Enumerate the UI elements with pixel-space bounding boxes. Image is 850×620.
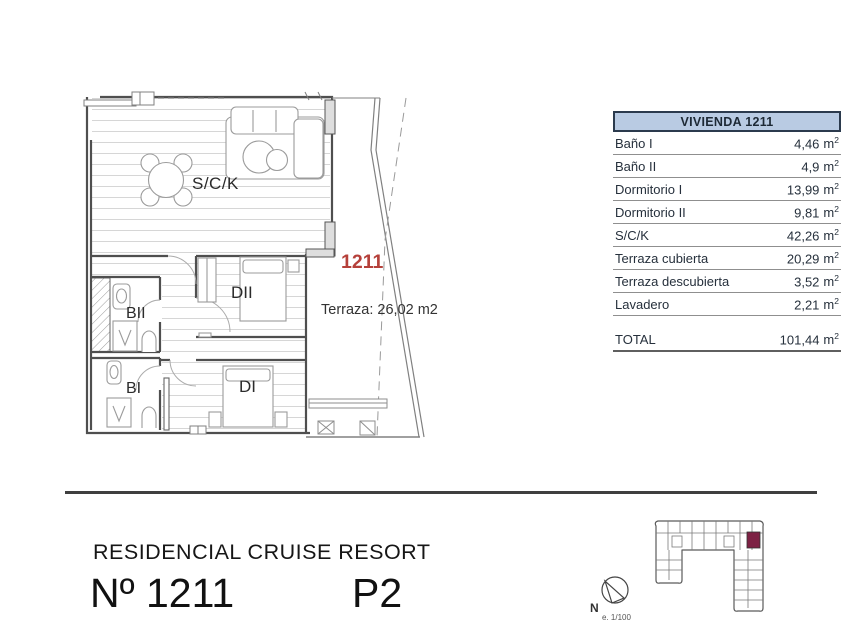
scale-label: e. 1/100 <box>602 613 631 620</box>
row-value: 42,26m2 <box>787 222 839 246</box>
shower-icon <box>107 398 131 427</box>
table-row: Baño II 4,9m2 <box>613 155 841 178</box>
row-label: S/C/K <box>615 226 649 246</box>
row-label: Baño II <box>615 157 656 177</box>
north-label: N <box>590 601 599 615</box>
table-row: Dormitorio I 13,99m2 <box>613 178 841 201</box>
unit-number-annotation: 1211 <box>341 251 383 273</box>
row-value: 20,29m2 <box>787 245 839 269</box>
row-value: 2,21m2 <box>794 291 839 315</box>
plan-sheet: S/C/K DII BII BI DI 1211 Terraza: 26,02 … <box>0 0 850 620</box>
row-label: Baño I <box>615 134 653 154</box>
laundry-hatch <box>91 278 110 352</box>
room-label-sck: S/C/K <box>192 174 239 193</box>
row-label: Terraza cubierta <box>615 249 708 269</box>
toilet-icon <box>142 407 156 428</box>
table-total-row: TOTAL 101,44m2 <box>613 328 841 352</box>
project-name: RESIDENCIAL CRUISE RESORT <box>93 540 430 565</box>
row-value: 3,52m2 <box>794 268 839 292</box>
table-row: Terraza descubierta 3,52m2 <box>613 270 841 293</box>
terrace-furniture <box>309 399 387 435</box>
footer-unit-number: Nº 1211 <box>90 570 234 617</box>
dining-table-icon <box>149 163 184 198</box>
total-value: 101,44m2 <box>780 326 839 350</box>
footer-floor-label: P2 <box>352 570 402 617</box>
row-value: 13,99m2 <box>787 176 839 200</box>
table-row: Lavadero 2,21m2 <box>613 293 841 316</box>
table-row: Dormitorio II 9,81m2 <box>613 201 841 224</box>
terrace-area-annotation: Terraza: 26,02 m2 <box>321 302 438 318</box>
building-key-plan <box>648 516 770 616</box>
table-row: Baño I 4,46m2 <box>613 132 841 155</box>
toilet-icon <box>142 331 156 352</box>
row-value: 4,9m2 <box>801 153 839 177</box>
room-label-di: DI <box>239 377 256 396</box>
row-label: Dormitorio II <box>615 203 686 223</box>
compass: N e. 1/100 <box>584 570 648 620</box>
row-label: Terraza descubierta <box>615 272 729 292</box>
highlighted-unit <box>747 532 760 548</box>
area-table: VIVIENDA 1211 Baño I 4,46m2 Baño II 4,9m… <box>613 111 841 352</box>
shower-icon <box>113 321 137 351</box>
row-value: 9,81m2 <box>794 199 839 223</box>
row-value: 4,46m2 <box>794 130 839 154</box>
room-label-dii: DII <box>231 283 253 302</box>
footer-divider <box>65 491 817 494</box>
table-row: S/C/K 42,26m2 <box>613 224 841 247</box>
room-label-bi: BI <box>126 380 141 397</box>
total-label: TOTAL <box>615 330 656 350</box>
north-arrow-icon <box>605 581 624 603</box>
row-label: Dormitorio I <box>615 180 682 200</box>
row-label: Lavadero <box>615 295 669 315</box>
table-row: Terraza cubierta 20,29m2 <box>613 247 841 270</box>
room-label-bii: BII <box>126 305 146 322</box>
